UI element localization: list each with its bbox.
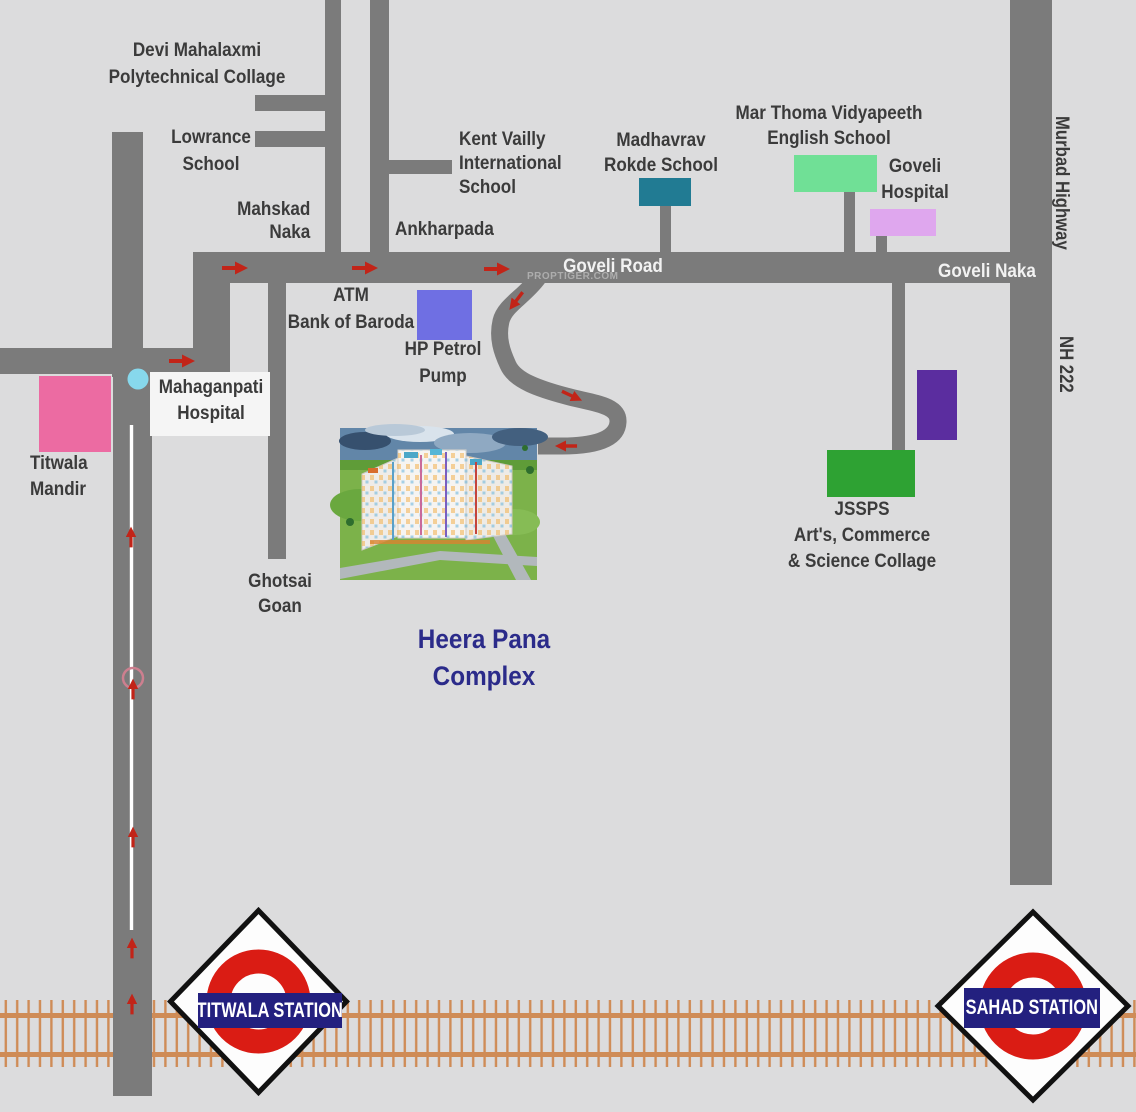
label-kent-vailly-international-school: Kent Vailly International School	[459, 128, 562, 200]
road-stub-polytechnic	[255, 95, 325, 111]
road-stub-kent-vailly	[389, 160, 452, 174]
mar-thoma-stem	[844, 192, 855, 253]
jssps-marker	[827, 450, 915, 497]
titwala-station-banner-text: TITWALA STATION	[197, 999, 343, 1023]
road-centre-line	[130, 425, 133, 930]
titwala-mandir-marker	[39, 376, 111, 452]
goveli-hospital-marker	[870, 209, 936, 236]
label-mahaganpati-hospital: Mahaganpati Hospital	[159, 375, 264, 427]
label-hp-petrol-pump: HP Petrol Pump	[405, 336, 482, 390]
madhavrav-school-marker	[639, 178, 691, 206]
madhavrav-stem	[660, 206, 671, 253]
purple-building-marker	[917, 370, 957, 440]
heera-pana-complex-image	[330, 424, 548, 580]
titwala-station-banner: TITWALA STATION	[198, 993, 342, 1028]
label-ankharpada: Ankharpada	[395, 217, 494, 243]
label-madhavrav-rokde-school: Madhavrav Rokde School	[604, 128, 718, 178]
junction-circle-marker	[128, 369, 149, 390]
atm-bank-marker	[417, 290, 472, 340]
label-heera-pana-complex: Heera Pana Complex	[418, 621, 550, 695]
label-lowrance-school: Lowrance School	[171, 124, 251, 178]
titwala-road-upper	[112, 132, 143, 377]
jssps-access-road	[892, 283, 905, 453]
location-map: Devi Mahalaxmi Polytechnical Collage Low…	[0, 0, 1136, 1112]
sahad-station-banner-text: SAHAD STATION	[966, 996, 1098, 1020]
ghotsai-road	[268, 283, 286, 559]
sahad-station-banner: SAHAD STATION	[964, 988, 1100, 1028]
label-atm-bank-of-baroda: ATM Bank of Baroda	[288, 282, 414, 336]
label-jssps-collage: JSSPS Art's, Commerce & Science Collage	[788, 497, 936, 575]
road-top-left-1	[325, 0, 341, 253]
label-titwala-mandir: Titwala Mandir	[30, 451, 88, 503]
goveli-hospital-stem	[876, 236, 887, 253]
mar-thoma-school-marker	[794, 155, 877, 192]
road-top-left-2	[370, 0, 389, 253]
label-murbad-highway: Murbad Highway	[1050, 116, 1072, 250]
label-goveli-naka: Goveli Naka	[938, 259, 1036, 285]
label-mar-thoma-vidyapeeth-english-school: Mar Thoma Vidyapeeth English School	[736, 101, 923, 151]
label-goveli-hospital: Goveli Hospital	[881, 154, 948, 206]
label-devi-mahalaxmi-polytechnical-collage: Devi Mahalaxmi Polytechnical Collage	[109, 37, 286, 91]
murbad-highway-road	[1010, 0, 1052, 885]
label-ghotsai-goan: Ghotsai Goan	[248, 569, 312, 619]
label-nh-222: NH 222	[1054, 336, 1076, 393]
road-stub-lowrance	[255, 131, 325, 147]
watermark: PROPTIGER.COM	[527, 271, 619, 282]
label-mahskad-naka: Mahskad Naka	[237, 198, 310, 244]
